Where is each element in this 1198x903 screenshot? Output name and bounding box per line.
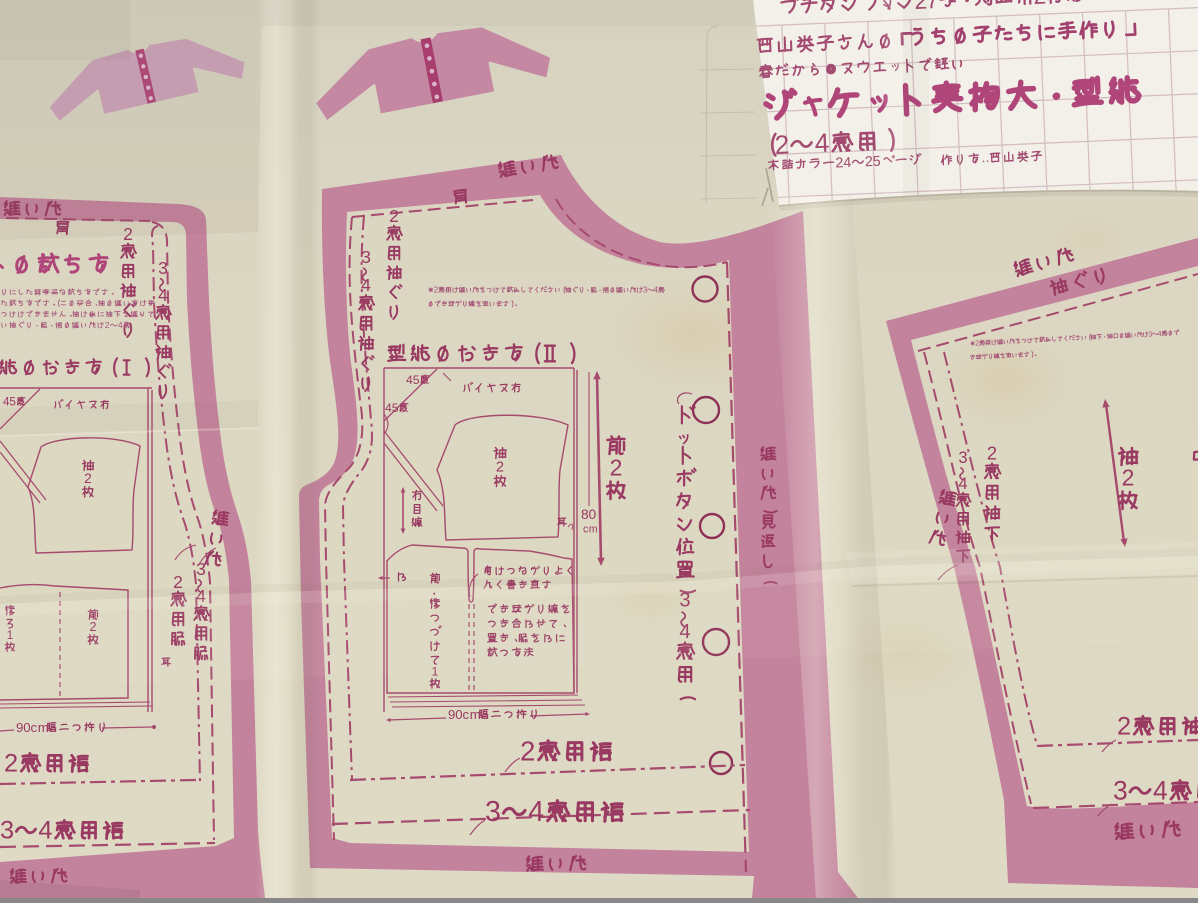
svg-text:3: 3 [1148, 329, 1153, 338]
svg-text:4: 4 [38, 817, 52, 845]
svg-text:4: 4 [528, 796, 544, 828]
svg-text:m: m [589, 524, 598, 536]
svg-text:4: 4 [814, 128, 830, 159]
svg-text:2: 2 [975, 338, 980, 347]
svg-text:4: 4 [843, 155, 852, 171]
svg-text:3: 3 [361, 247, 371, 267]
svg-text:4: 4 [654, 286, 659, 295]
svg-text:5: 5 [872, 154, 881, 170]
svg-text:3: 3 [643, 286, 648, 295]
svg-text:5: 5 [413, 373, 420, 387]
svg-text:4: 4 [158, 285, 168, 305]
svg-text:2: 2 [105, 320, 110, 330]
svg-text:2: 2 [520, 735, 535, 766]
svg-text:2: 2 [434, 286, 439, 295]
svg-text:c: c [31, 720, 38, 735]
svg-text:4: 4 [958, 474, 967, 493]
svg-text:0: 0 [23, 720, 30, 735]
svg-text:4: 4 [1153, 776, 1168, 806]
svg-text:5: 5 [392, 401, 399, 415]
svg-text:2: 2 [1033, 0, 1047, 9]
svg-text:3: 3 [485, 796, 501, 828]
svg-text:2: 2 [610, 455, 623, 481]
svg-text:4: 4 [1157, 329, 1162, 338]
svg-text:2: 2 [987, 442, 997, 463]
svg-text:4: 4 [118, 320, 123, 330]
svg-text:c: c [463, 707, 470, 722]
svg-text:0: 0 [589, 507, 597, 522]
svg-text:3: 3 [1113, 776, 1128, 806]
svg-text:2: 2 [1122, 465, 1135, 491]
svg-text:4: 4 [361, 275, 371, 295]
svg-text:2: 2 [389, 206, 399, 226]
svg-text:2: 2 [84, 471, 92, 486]
svg-text:2: 2 [496, 460, 504, 476]
svg-text:0: 0 [455, 707, 462, 722]
svg-text:5: 5 [9, 396, 16, 409]
svg-text:3: 3 [958, 448, 967, 467]
svg-text:3: 3 [158, 258, 168, 278]
svg-text:2: 2 [1117, 713, 1131, 741]
svg-text:2: 2 [4, 750, 18, 778]
svg-text:3: 3 [0, 817, 14, 845]
svg-text:2: 2 [774, 129, 790, 160]
